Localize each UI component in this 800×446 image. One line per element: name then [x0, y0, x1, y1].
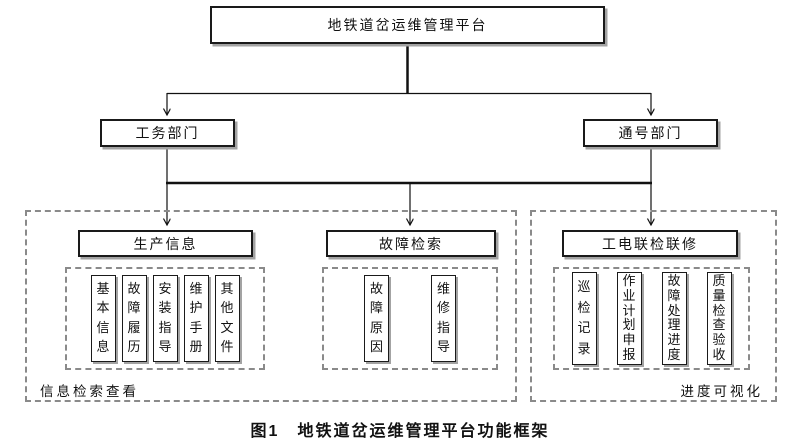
- section-production-info-label: 生产信息: [134, 234, 198, 254]
- item-fault-history-label: 故障履历: [123, 276, 146, 361]
- item-inspection-record: 巡检记录: [572, 272, 597, 365]
- item-work-plan-application-label: 作业计划申报: [618, 273, 641, 364]
- item-repair-guide-label: 维修指导: [432, 276, 455, 361]
- item-maintenance-manual: 维护手册: [184, 275, 209, 362]
- item-installation-guide-label: 安装指导: [154, 276, 177, 361]
- item-repair-guide: 维修指导: [431, 275, 456, 362]
- fault-retrieval-item-group: 故障原因 维修指导: [322, 267, 498, 370]
- item-inspection-record-label: 巡检记录: [573, 273, 596, 364]
- zone-label-info-retrieval: 信息检索查看: [40, 380, 139, 400]
- item-fault-cause: 故障原因: [364, 275, 389, 362]
- root-platform-label: 地铁道岔运维管理平台: [328, 15, 488, 35]
- production-info-item-group: 基本信息 故障履历 安装指导 维护手册 其他文件: [65, 267, 265, 370]
- section-fault-retrieval-label: 故障检索: [379, 234, 443, 254]
- section-production-info-box: 生产信息: [78, 230, 253, 257]
- figure-caption: 图1 地铁道岔运维管理平台功能框架: [0, 417, 800, 441]
- diagram-canvas: 地铁道岔运维管理平台 工务部门 通号部门 生产信息 故障检索 工电联检联修 基本…: [0, 0, 800, 446]
- item-other-files: 其他文件: [215, 275, 240, 362]
- item-quality-inspection-acceptance-label: 质量检查验收: [708, 273, 731, 364]
- item-maintenance-manual-label: 维护手册: [185, 276, 208, 361]
- item-basic-info-label: 基本信息: [92, 276, 115, 361]
- item-basic-info: 基本信息: [91, 275, 116, 362]
- department-gongwu-box: 工务部门: [100, 119, 235, 147]
- section-joint-inspection-box: 工电联检联修: [562, 230, 738, 257]
- department-tonghao-label: 通号部门: [619, 123, 683, 143]
- zone-label-progress-visualization: 进度可视化: [681, 380, 764, 400]
- section-fault-retrieval-box: 故障检索: [326, 230, 496, 257]
- item-fault-handling-progress-label: 故障处理进度: [663, 273, 686, 364]
- item-work-plan-application: 作业计划申报: [617, 272, 642, 365]
- item-quality-inspection-acceptance: 质量检查验收: [707, 272, 732, 365]
- item-fault-cause-label: 故障原因: [365, 276, 388, 361]
- joint-inspection-item-group: 巡检记录 作业计划申报 故障处理进度 质量检查验收: [553, 267, 750, 370]
- root-platform-box: 地铁道岔运维管理平台: [210, 6, 605, 44]
- item-other-files-label: 其他文件: [216, 276, 239, 361]
- item-fault-history: 故障履历: [122, 275, 147, 362]
- department-tonghao-box: 通号部门: [583, 119, 718, 147]
- section-joint-inspection-label: 工电联检联修: [602, 234, 698, 254]
- item-installation-guide: 安装指导: [153, 275, 178, 362]
- item-fault-handling-progress: 故障处理进度: [662, 272, 687, 365]
- department-gongwu-label: 工务部门: [136, 123, 200, 143]
